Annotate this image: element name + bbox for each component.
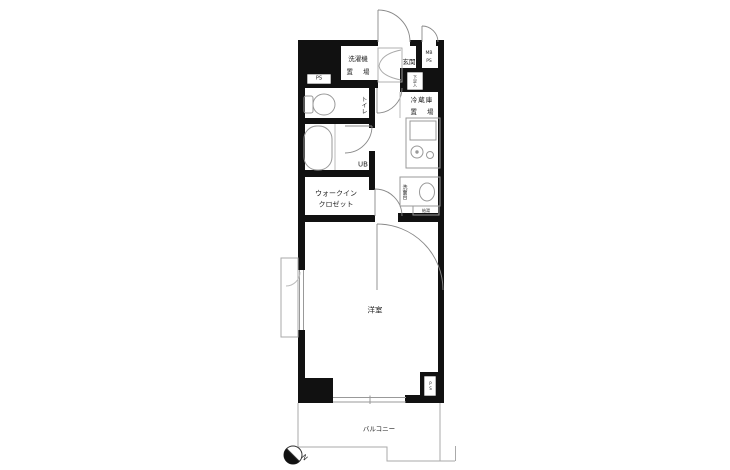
pipe-space-top-label: PS (316, 77, 322, 82)
bathtub-icon (304, 124, 335, 170)
washer-closet-door (378, 48, 402, 82)
north-compass-icon (284, 446, 302, 464)
entrance-label: 玄関 (403, 59, 416, 66)
washstand-label: 洗面台 (402, 185, 407, 200)
walk-in-closet-label-2: クロゼット (319, 202, 354, 209)
room-door-arc (377, 224, 443, 290)
meter-box-label-2: PS (426, 60, 432, 65)
floor-plan: 洗濯機 置 場 PS 玄関 MB PS 下足入 トイレ 冷蔵庫 置 場 UB 洗… (0, 0, 730, 470)
fridge-place-label-1: 冷蔵庫 (411, 97, 434, 104)
unit-bath-label: UB (358, 162, 368, 169)
balcony-label: バルコニー (363, 426, 395, 433)
water-heater-label: 給湯 (422, 209, 430, 213)
bath-door-arc (345, 126, 372, 153)
washer-place-label-2: 置 場 (346, 69, 373, 76)
stove-burner-small-icon (427, 152, 434, 159)
toilet-label: トイレ (360, 96, 366, 114)
washer-place-label-1: 洗濯機 (348, 56, 368, 63)
entrance-door-arc (378, 10, 410, 42)
pipe-space-bottom-label: PS (428, 381, 432, 391)
sink-icon (410, 121, 436, 140)
fridge-place-label-2: 置 場 (410, 109, 437, 116)
shoe-box-label: 下足入 (413, 75, 417, 87)
meter-box-door-arc (422, 26, 438, 42)
walk-in-closet-label-1: ウォークイン (315, 191, 357, 198)
closet-door-arc (375, 189, 402, 216)
hall-door-arc (377, 88, 402, 113)
pillar (298, 378, 333, 403)
balcony-window (333, 396, 406, 405)
toilet-icon (304, 94, 335, 115)
western-room-label: 洋室 (368, 306, 383, 314)
meter-box-label-1: MB (426, 52, 433, 57)
